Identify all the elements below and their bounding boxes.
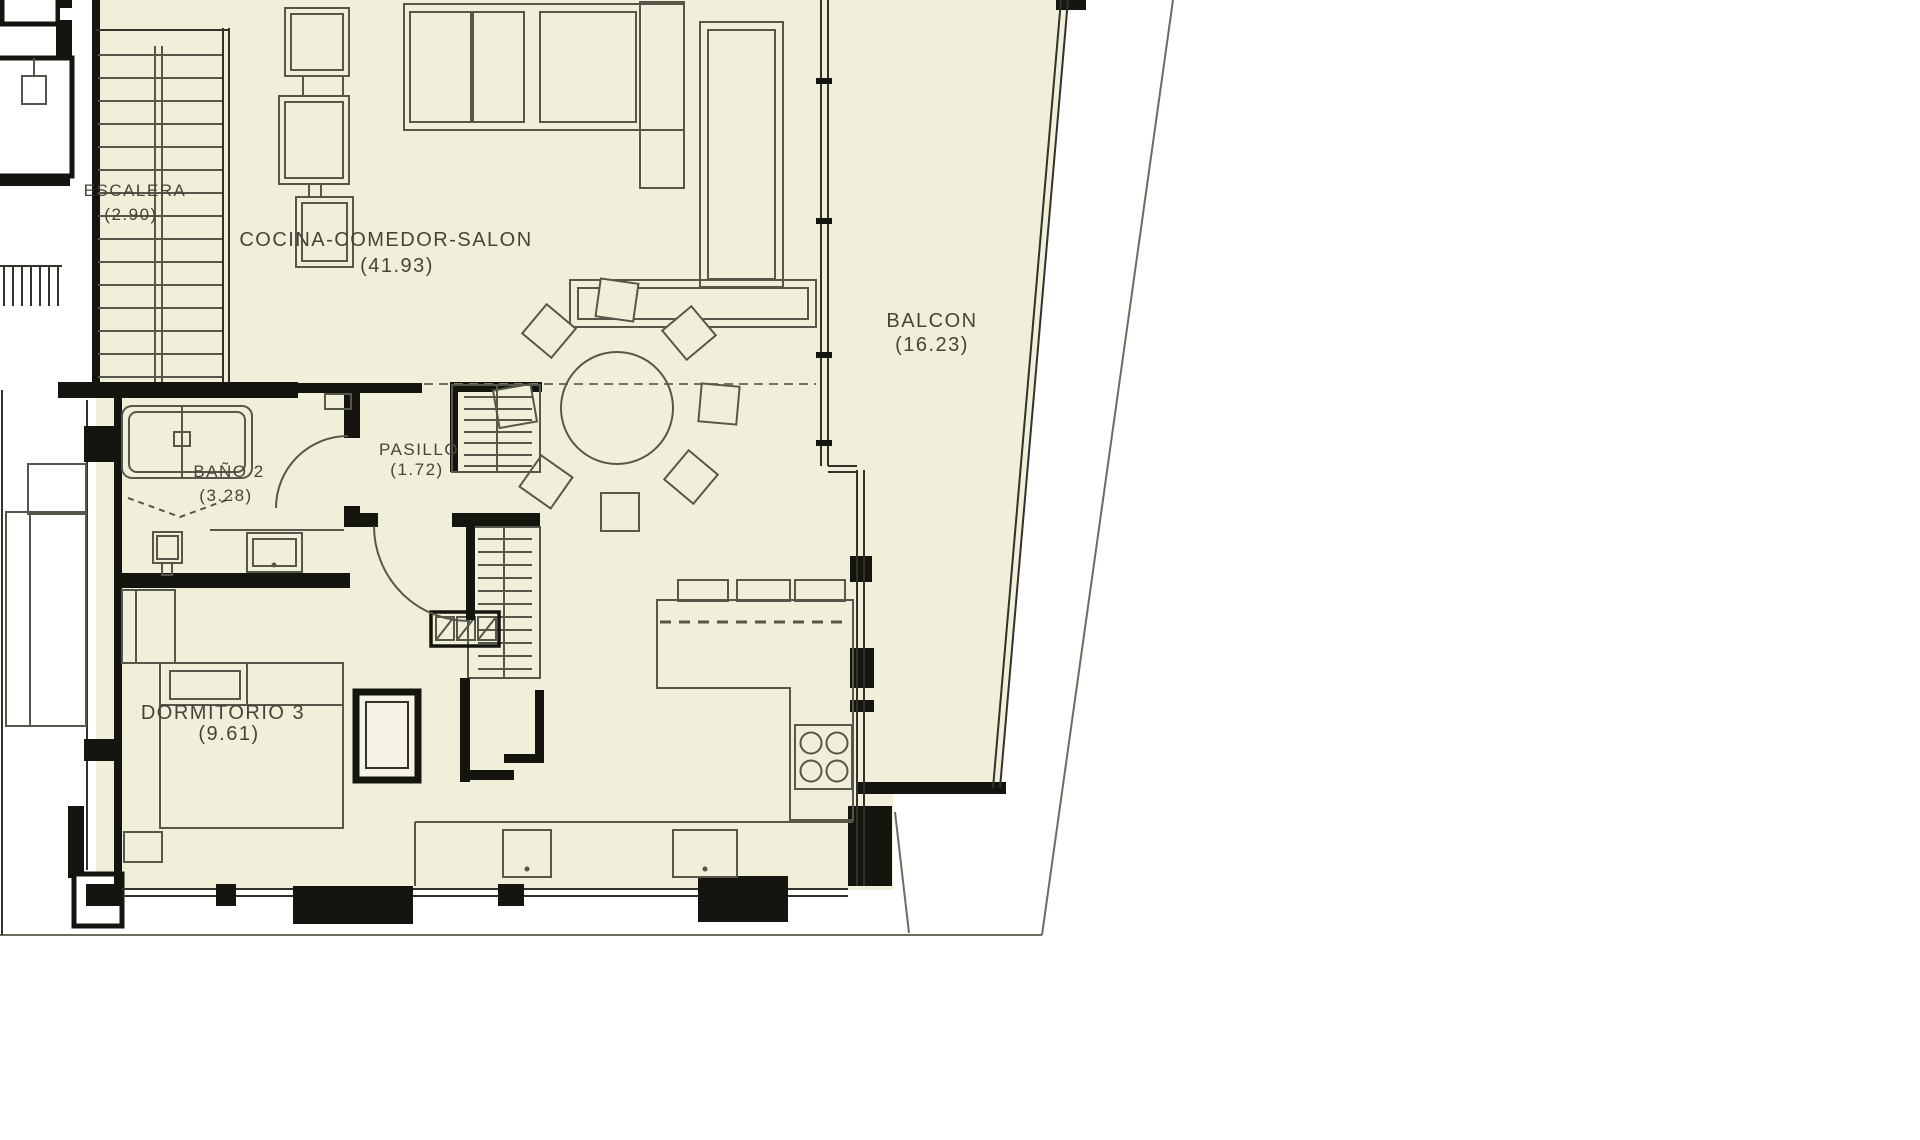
bedroom-door-leaf bbox=[466, 518, 475, 620]
room-area: (9.61) bbox=[198, 723, 259, 745]
room-area: (16.23) bbox=[895, 334, 969, 356]
room-name: PASILLO bbox=[379, 440, 459, 459]
neighbor-bed bbox=[6, 512, 86, 726]
room-name: COCINA-COMEDOR-SALON bbox=[239, 229, 532, 251]
room-name: ESCALERA bbox=[84, 181, 187, 200]
neighbor-nightstand bbox=[28, 464, 86, 514]
balcony-edge bbox=[858, 782, 1006, 794]
room-area: (2.90) bbox=[104, 205, 157, 224]
room-area: (41.93) bbox=[360, 255, 434, 277]
floor-surfaces bbox=[96, 0, 1068, 890]
room-area: (1.72) bbox=[390, 460, 443, 479]
room-area: (3.28) bbox=[199, 486, 252, 505]
neighbor-railing bbox=[0, 266, 62, 306]
room-name: BAÑO 2 bbox=[193, 462, 264, 481]
room-name: DORMITORIO 3 bbox=[141, 702, 305, 724]
room-name: BALCON bbox=[886, 310, 977, 332]
neighbor-room-top bbox=[2, 0, 58, 24]
sliding-door-rail bbox=[258, 383, 422, 393]
floor-plan-drawing: ESCALERA (2.90) COCINA-COMEDOR-SALON (41… bbox=[0, 0, 1920, 1140]
corner-pillar bbox=[848, 806, 892, 886]
floor-plan: ESCALERA (2.90) COCINA-COMEDOR-SALON (41… bbox=[0, 0, 1920, 1140]
interior-floor bbox=[96, 0, 893, 890]
